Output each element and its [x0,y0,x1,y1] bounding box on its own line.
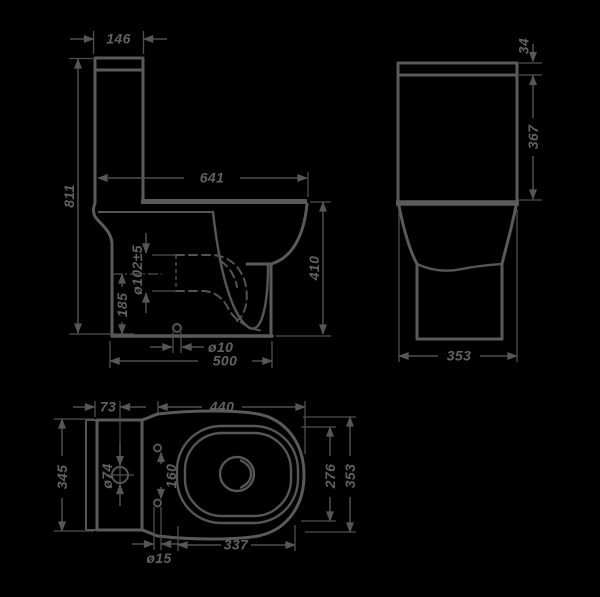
dim-label-bowl-length: 440 [209,399,235,415]
trap-lower-dashed [176,291,263,331]
dim-label-seat-hole-diameter: ø15 [146,550,171,566]
front-view: 34 367 353 [396,38,542,364]
side-fixing-hole [173,324,181,332]
ext-34 [519,63,542,75]
front-pedestal-outline [417,264,502,339]
side-back-pedestal-outline [93,203,112,336]
plan-tank-bowl-transition [142,414,158,536]
toilet-dimension-drawing: 146 811 641 410 ø102±5 185 ø10 500 [0,0,600,597]
dim-label-rear-width: 345 [54,465,70,490]
ext-outlet [152,255,176,291]
dim-label-rim-width: 276 [322,464,338,490]
side-cistern-outline [95,58,143,203]
ext-o15 [154,507,161,550]
dim-label-rim-length: 337 [224,537,249,553]
dim-label-inlet-diameter: ø74 [99,463,115,488]
plan-water-arc [241,461,251,488]
side-front-outline [247,204,307,336]
dim-label-tank-depth: 146 [106,31,131,47]
technical-drawing-canvas: 146 811 641 410 ø102±5 185 ø10 500 [0,0,600,597]
dim-label-lid-height: 34 [516,38,532,54]
dim-label-front-width: 353 [447,348,472,364]
front-cistern-outline [398,63,517,200]
plan-rim-outer [177,426,298,523]
front-bowl-sides [399,206,516,264]
dim-label-seat-hole-spacing: 160 [163,464,179,489]
plan-seat-hole-bottom [154,500,161,507]
plan-rim-inner [185,433,291,516]
dim-label-base-depth: 500 [213,353,238,369]
dim-label-rim-height: 410 [306,256,322,282]
dim-label-cistern-height: 367 [525,124,541,149]
side-view: 146 811 641 410 ø102±5 185 ø10 500 [61,31,331,369]
ext-500 [110,341,272,368]
dim-label-total-depth: 641 [200,170,225,186]
dim-label-outlet-height: 185 [114,293,130,318]
dim-label-inlet-offset: 73 [100,399,116,415]
dim-label-outlet-diameter: ø102±5 [129,245,145,295]
plan-outer-bowl-outline [158,411,304,539]
plan-water-circle [220,457,254,491]
dim-label-overall-width: 353 [342,464,358,489]
plan-seat-hole-top [154,445,161,452]
plan-back-plate [86,420,97,530]
front-bowl-bottom-wave [417,264,502,271]
plan-view: 73 440 345 ø74 160 276 353 ø15 [54,399,358,567]
dim-label-total-height: 811 [61,184,77,208]
